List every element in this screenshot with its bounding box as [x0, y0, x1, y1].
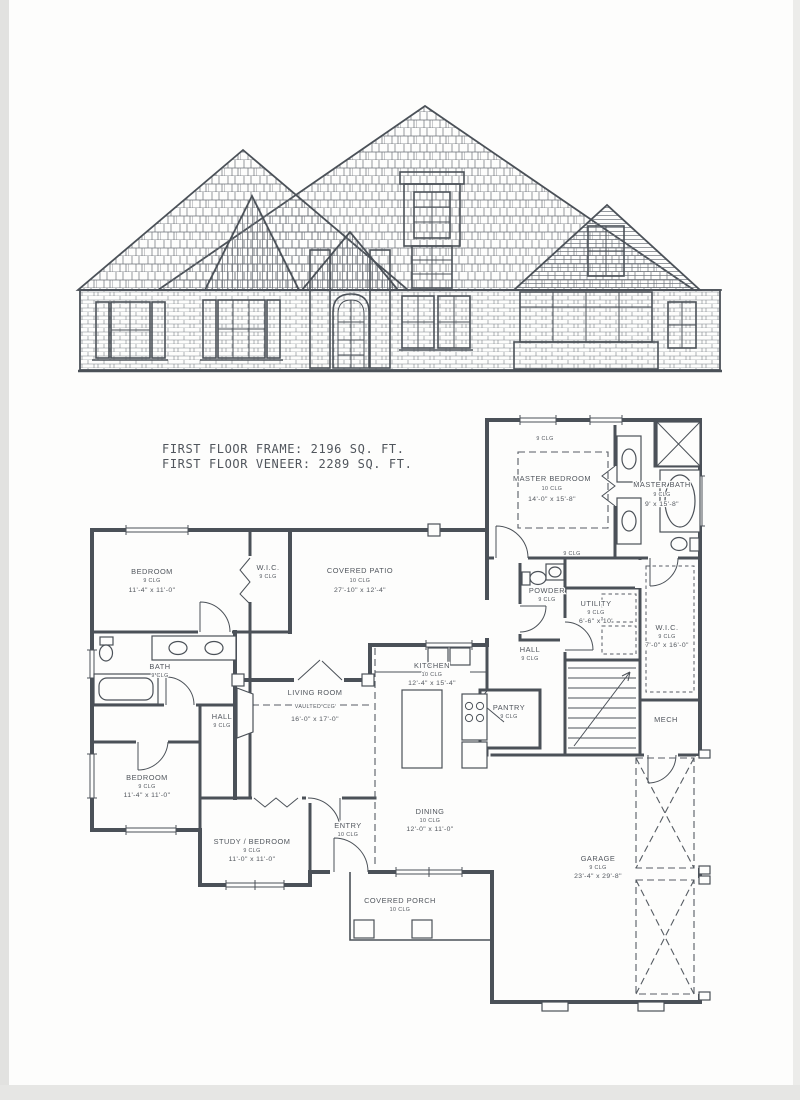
room-label-powder: POWDER [529, 586, 565, 595]
room-dims-living: 16'-0" x 17'-0" [291, 716, 339, 723]
room-labels: 9 CLG 9 CLG MASTER BEDROOM 10 CLG 14'-0"… [124, 436, 691, 913]
porch-column [354, 920, 374, 938]
scan-edge-bottom [0, 1085, 800, 1100]
room-clg-wic-tl: 9 CLG [259, 574, 276, 580]
room-clg-hall-r: 9 CLG [521, 656, 538, 662]
garage-door-jamb [699, 750, 710, 758]
room-label-pantry: PANTRY [493, 703, 525, 712]
room-dims-study: 11'-0" x 11'-0" [229, 856, 276, 863]
garage-door-2 [636, 880, 694, 994]
front-elevation [78, 106, 722, 371]
patio-post [428, 524, 440, 536]
room-label-living: LIVING ROOM [288, 688, 343, 697]
toilet-icon [671, 538, 699, 552]
room-dims-bedroom-tl: 11'-4" x 11'-0" [129, 587, 176, 594]
garage-door-jamb [699, 866, 710, 874]
room-dims-utility: 6'-6" x 10' [579, 618, 613, 625]
room-clg-garage: 9 CLG [589, 865, 606, 871]
room-label-entry: ENTRY [334, 821, 361, 830]
room-clg-powder: 9 CLG [538, 597, 555, 603]
room-clg-utility: 9 CLG [587, 610, 604, 616]
shower-icon [657, 422, 700, 466]
room-dims-wic-r: 7'-0" x 16'-0" [645, 642, 689, 649]
room-clg-covered-patio: 10 CLG [350, 578, 371, 584]
room-label-hall-l: HALL [212, 712, 233, 721]
garage-door-jamb [699, 876, 710, 884]
room-clg-master-bath: 9 CLG [653, 492, 670, 498]
room-dims-covered-patio: 27'-10" x 12'-4" [334, 587, 386, 594]
room-clg-porch: 10 CLG [390, 907, 411, 913]
room-label-hall-r: HALL [520, 645, 541, 654]
room-clg-bedroom-tl: 9 CLG [143, 578, 160, 584]
room-clg-dining: 10 CLG [420, 818, 441, 824]
room-clg-wic-r: 9 CLG [658, 634, 675, 640]
dryer-box [602, 626, 636, 654]
room-label-garage: GARAGE [581, 854, 616, 863]
door-swings [138, 466, 678, 872]
tray-ceiling-outline [518, 452, 608, 528]
room-clg-bath: 9 CLG [151, 673, 168, 679]
room-dims-dining: 12'-0" x 11'-0" [406, 826, 453, 833]
room-dims-bedroom-bl: 11'-4" x 11'-0" [124, 792, 171, 799]
garage-door-2-x [636, 880, 694, 994]
kitchen-island [402, 690, 442, 768]
room-label-porch: COVERED PORCH [364, 896, 436, 905]
room-label-wic-r: W.I.C. [655, 623, 678, 632]
powder-fixtures [522, 564, 564, 585]
room-dims-garage: 23'-4" x 29'-8" [574, 873, 622, 880]
room-dims-kitchen: 12'-4" x 15'-4" [408, 680, 456, 687]
garage-pier [542, 1002, 568, 1011]
fireplace-icon [237, 688, 253, 738]
scan-edge-left [0, 0, 9, 1100]
master-vanity [617, 436, 641, 544]
room-label-master-bath: MASTER BATH [633, 480, 691, 489]
porch-column [412, 920, 432, 938]
scan-edge-right [793, 0, 800, 1100]
garage-door-jamb [699, 992, 710, 1000]
room-dims-master-bedroom: 14'-0" x 15'-8" [528, 496, 576, 503]
room-label-bedroom-tl: BEDROOM [131, 567, 173, 576]
stairs [568, 668, 636, 748]
exterior-walls [92, 420, 700, 1002]
plan-title-line1: FIRST FLOOR FRAME: 2196 SQ. FT. [162, 442, 405, 456]
refrigerator-icon [462, 742, 487, 768]
room-clg-hall-l: 9 CLG [213, 723, 230, 729]
room-label-study: STUDY / BEDROOM [214, 837, 291, 846]
scanned-blueprint-page: FIRST FLOOR FRAME: 2196 SQ. FT. FIRST FL… [0, 0, 800, 1100]
room-label-kitchen: KITCHEN [414, 661, 450, 670]
fixtures [94, 422, 710, 1011]
room-label-dining: DINING [416, 807, 445, 816]
room-label-master-bedroom: MASTER BEDROOM [513, 474, 591, 483]
brick-wall-band [80, 290, 720, 370]
room-clg-pantry: 9 CLG [500, 714, 517, 720]
room-label-mech: MECH [654, 715, 678, 724]
patio-post [232, 674, 244, 686]
patio-post [362, 674, 374, 686]
room-dims-master-bath: 9' x 15'-8" [645, 501, 679, 508]
garage-pier [638, 1002, 664, 1011]
room-clg-bedroom-bl: 9 CLG [138, 784, 155, 790]
plan-title-line2: FIRST FLOOR VENEER: 2289 SQ. FT. [162, 457, 412, 471]
room-label-bedroom-bl: BEDROOM [126, 773, 168, 782]
note-master-clg: 9 CLG [536, 436, 553, 442]
covered-porch-outline [350, 872, 492, 940]
room-clg-study: 9 CLG [243, 848, 260, 854]
room-clg-master-bedroom: 10 CLG [542, 486, 563, 492]
blueprint-sheet: FIRST FLOOR FRAME: 2196 SQ. FT. FIRST FL… [0, 0, 800, 1100]
room-clg-entry: 10 CLG [338, 832, 359, 838]
room-label-utility: UTILITY [580, 599, 611, 608]
room-clg-living: VAULTED CLG [295, 704, 335, 710]
garage-door-1-x [636, 758, 694, 868]
floor-plan: 9 CLG 9 CLG MASTER BEDROOM 10 CLG 14'-0"… [87, 415, 710, 1011]
exterior-walls-core [92, 420, 700, 1002]
room-clg-kitchen: 10 CLG [422, 672, 443, 678]
room-label-wic-tl: W.I.C. [256, 563, 279, 572]
room-label-bath: BATH [149, 662, 170, 671]
room-label-covered-patio: COVERED PATIO [327, 566, 393, 575]
note-hall-clg: 9 CLG [563, 551, 580, 557]
